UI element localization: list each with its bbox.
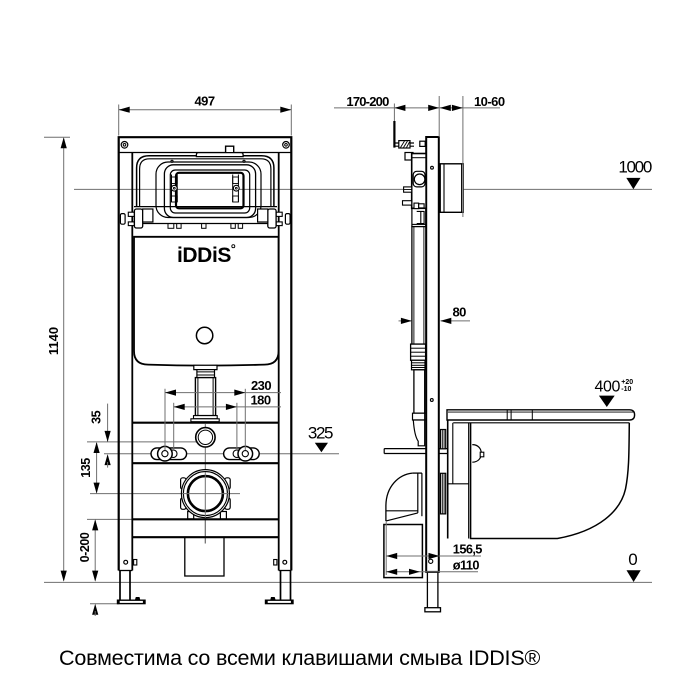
svg-text:497: 497	[194, 94, 214, 109]
svg-text:230: 230	[251, 378, 271, 393]
svg-text:ø110: ø110	[453, 557, 480, 572]
svg-text:35: 35	[90, 410, 104, 424]
svg-text:1000: 1000	[618, 157, 651, 176]
svg-text:-10: -10	[621, 386, 631, 393]
svg-text:80: 80	[453, 305, 467, 320]
svg-text:180: 180	[250, 392, 270, 407]
svg-text:325: 325	[308, 424, 333, 443]
svg-text:0-200: 0-200	[78, 532, 92, 562]
svg-text:156,5: 156,5	[453, 542, 483, 557]
svg-text:170-200: 170-200	[346, 94, 389, 109]
svg-text:400: 400	[595, 379, 621, 396]
svg-text:iDDiS: iDDiS	[177, 244, 231, 267]
svg-text:0: 0	[628, 550, 637, 569]
svg-text:1140: 1140	[46, 327, 61, 355]
svg-text:135: 135	[79, 458, 93, 478]
svg-text:Совместима со всеми клавишами: Совместима со всеми клавишами смыва IDDI…	[59, 646, 540, 670]
svg-text:10-60: 10-60	[474, 94, 505, 109]
